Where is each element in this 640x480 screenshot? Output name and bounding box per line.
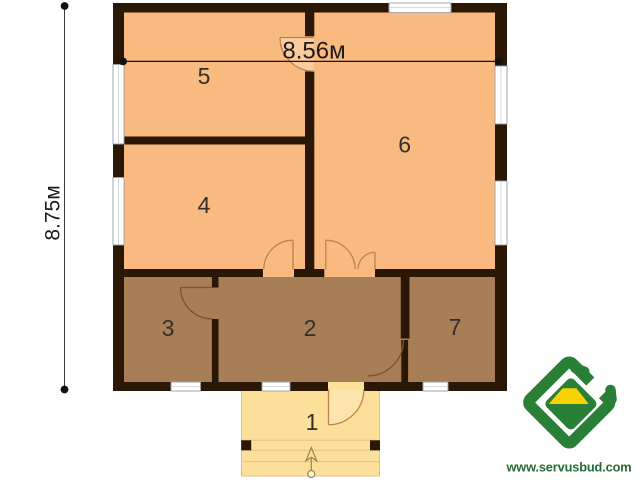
svg-text:5: 5 (198, 63, 211, 89)
svg-text:6: 6 (398, 132, 411, 158)
svg-text:1: 1 (306, 409, 319, 435)
svg-text:8.75м: 8.75м (42, 185, 65, 240)
svg-text:www.servusbud.com: www.servusbud.com (506, 460, 632, 475)
svg-text:2: 2 (304, 315, 317, 341)
svg-text:7: 7 (449, 314, 462, 340)
svg-text:3: 3 (162, 315, 175, 341)
svg-text:8.56м: 8.56м (282, 38, 345, 65)
svg-text:4: 4 (198, 192, 211, 218)
